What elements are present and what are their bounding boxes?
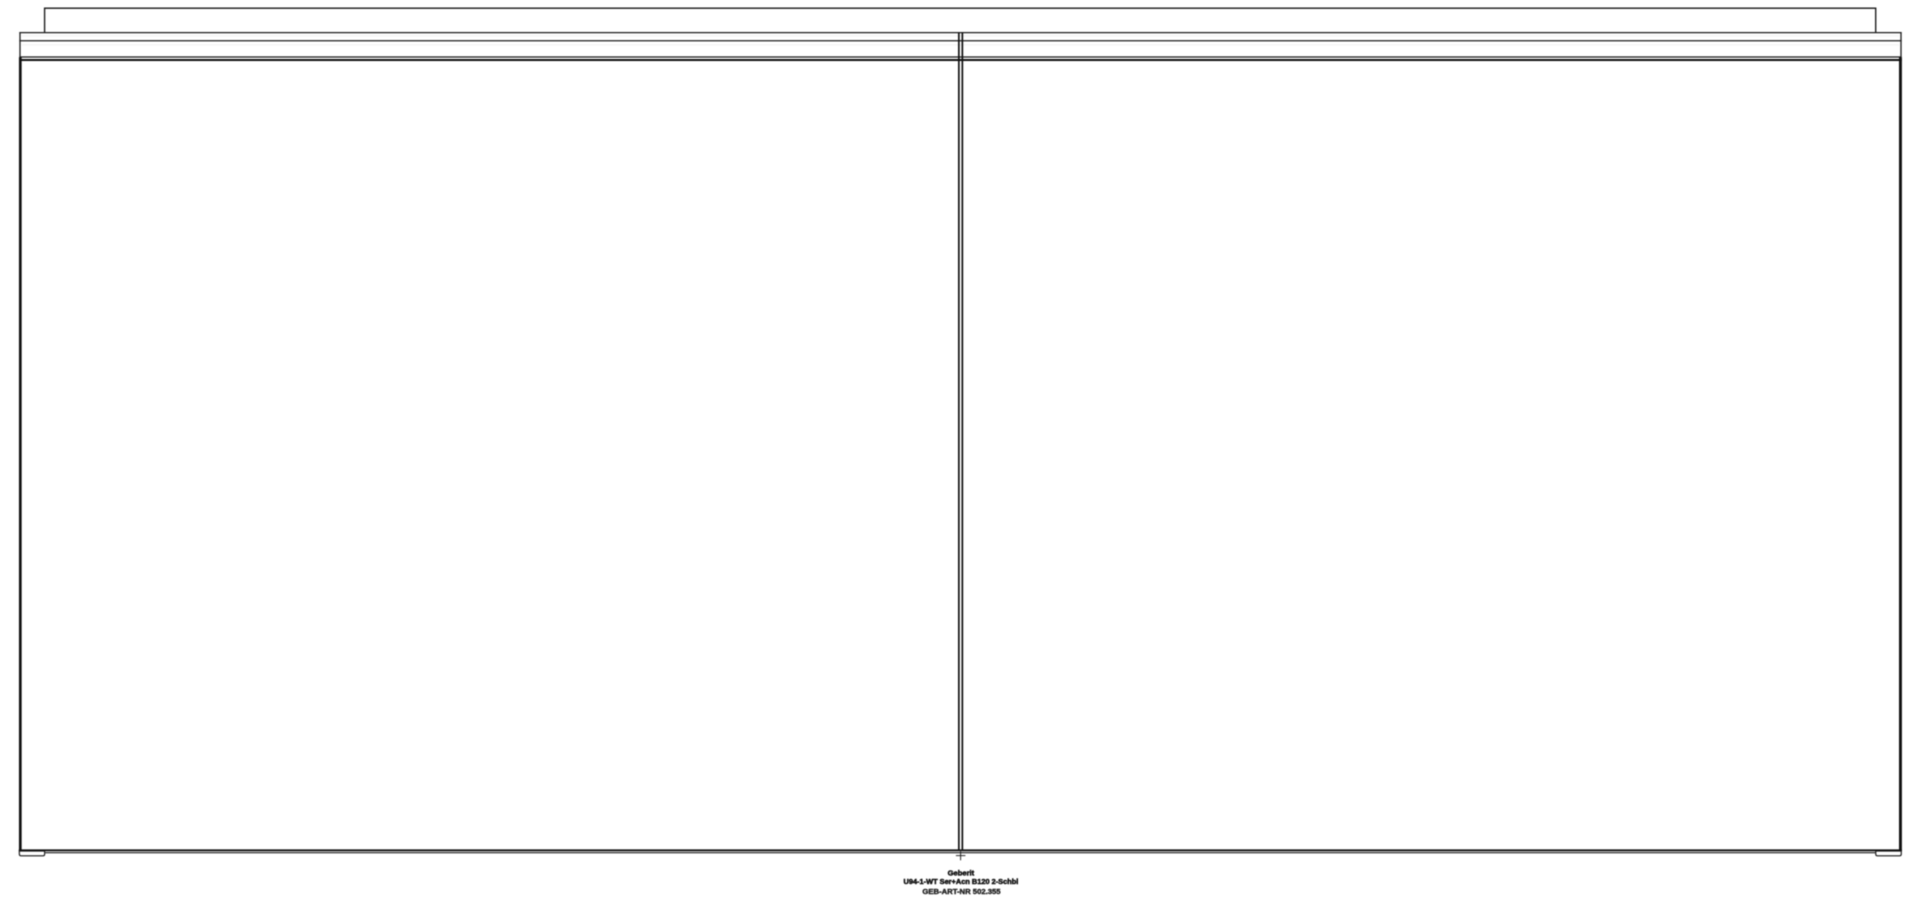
svg-text:U94-1-WT Ser+Acn B120 2-Schbl: U94-1-WT Ser+Acn B120 2-Schbl xyxy=(904,877,1019,886)
svg-text:GEB-ART-NR 502.355: GEB-ART-NR 502.355 xyxy=(922,887,1001,896)
